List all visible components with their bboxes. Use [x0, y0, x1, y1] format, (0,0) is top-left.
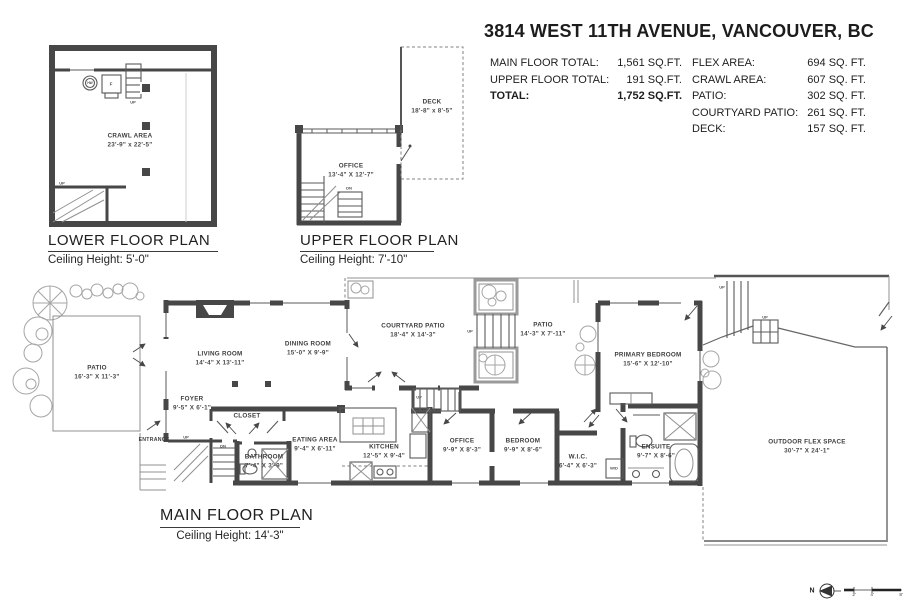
stat-row: COURTYARD PATIO: 261 SQ. FT. — [692, 105, 866, 122]
stat-label: PATIO: — [692, 88, 726, 105]
stat-label: DECK: — [692, 121, 726, 138]
room-label-office: OFFICE 9'-9" X 8'-3" — [443, 437, 481, 456]
upper-plan-caption: UPPER FLOOR PLAN Ceiling Height: 7'-10" — [300, 232, 434, 266]
caption-rule — [160, 527, 300, 528]
stairs-dn-label: DN — [220, 444, 226, 449]
lower-plan-ceiling: Ceiling Height: 5'-0" — [48, 254, 218, 266]
stat-row: PATIO: 302 SQ. FT. — [692, 88, 866, 105]
room-label-foyer: FOYER 9'-5" X 6'-1" — [173, 395, 211, 414]
stat-row: CRAWL AREA: 607 SQ. FT. — [692, 72, 866, 89]
stairs-up-label: UP — [416, 395, 422, 400]
room-label-upper-office: OFFICE 13'-4" X 12'-7" — [328, 162, 374, 181]
stat-row: MAIN FLOOR TOTAL: 1,561 SQ.FT. — [490, 55, 682, 72]
main-plan-graphics — [13, 276, 892, 545]
room-label-outdoor-flex-space: OUTDOOR FLEX SPACE 30'-7" X 24'-1" — [768, 438, 846, 457]
compass-and-scale — [819, 584, 902, 598]
stat-row: FLEX AREA: 694 SQ. FT. — [692, 55, 866, 72]
stat-row: UPPER FLOOR TOTAL: 191 SQ.FT. — [490, 72, 682, 89]
main-plan-title: MAIN FLOOR PLAN — [160, 507, 300, 525]
stat-value: 261 SQ. FT. — [807, 105, 866, 122]
room-label-eating-area: EATING AREA 9'-4" X 6'-11" — [292, 436, 337, 455]
stairs-up-label: UP — [59, 181, 65, 186]
room-label-courtyard-patio: COURTYARD PATIO 18'-4" X 14'-3" — [381, 322, 444, 341]
stat-row-total: TOTAL: 1,752 SQ.FT. — [490, 88, 682, 105]
room-label-crawl-area: CRAWL AREA 23'-9" x 22'-5" — [108, 132, 153, 151]
stairs-up-label: UP — [719, 285, 725, 290]
stairs-up-label: UP — [762, 315, 768, 320]
furnace-label: F — [110, 82, 113, 87]
stairs-up-label: UP — [130, 100, 136, 105]
stat-value: 157 SQ. FT. — [807, 121, 866, 138]
stat-label: TOTAL: — [490, 88, 529, 105]
scale-tick: 4' — [870, 592, 873, 597]
upper-plan-ceiling: Ceiling Height: 7'-10" — [300, 254, 434, 266]
room-label-closet: CLOSET — [233, 411, 260, 420]
room-label-kitchen: KITCHEN 12'-5" X 9'-4" — [363, 443, 405, 462]
stat-label: MAIN FLOOR TOTAL: — [490, 55, 599, 72]
washer-dryer-label: W/D — [610, 466, 618, 471]
outdoor-flex-space-outline — [701, 281, 887, 545]
stat-value: 694 SQ. FT. — [807, 55, 866, 72]
room-label-bathroom: BATHROOM 7'-4" X 3'-9" — [245, 453, 284, 472]
room-label-ensuite: ENSUITE 9'-7" X 8'-6" — [637, 443, 675, 462]
scale-tick: 8' — [899, 592, 902, 597]
stat-value: 1,561 SQ.FT. — [617, 55, 682, 72]
stat-label: FLEX AREA: — [692, 55, 755, 72]
room-label-deck: DECK 18'-8" x 8'-5" — [411, 98, 452, 117]
upper-plan-title: UPPER FLOOR PLAN — [300, 232, 434, 249]
stat-label: CRAWL AREA: — [692, 72, 766, 89]
caption-rule — [300, 251, 434, 252]
main-plan-caption: MAIN FLOOR PLAN Ceiling Height: 14'-3" — [160, 507, 300, 542]
stat-label: COURTYARD PATIO: — [692, 105, 798, 122]
room-label-wic: W.I.C. 6'-4" X 6'-3" — [559, 453, 597, 472]
lower-plan-title: LOWER FLOOR PLAN — [48, 232, 218, 249]
page-title: 3814 WEST 11TH AVENUE, VANCOUVER, BC — [479, 21, 879, 42]
room-label-dining-room: DINING ROOM 15'-0" X 9'-9" — [285, 340, 331, 359]
stairs-up-label: UP — [183, 435, 189, 440]
scale-tick: 2' — [852, 592, 855, 597]
stat-value: 607 SQ. FT. — [807, 72, 866, 89]
floor-totals-table: MAIN FLOOR TOTAL: 1,561 SQ.FT. UPPER FLO… — [490, 55, 682, 105]
lower-plan-caption: LOWER FLOOR PLAN Ceiling Height: 5'-0" — [48, 232, 218, 266]
room-label-patio-mid: PATIO 14'-3" X 7'-11" — [520, 321, 565, 340]
main-plan-ceiling: Ceiling Height: 14'-3" — [160, 530, 300, 542]
room-label-living-room: LIVING ROOM 14'-4" X 13'-11" — [195, 350, 244, 369]
room-label-patio-west: PATIO 16'-3" X 11'-3" — [74, 364, 119, 383]
stat-value: 302 SQ. FT. — [807, 88, 866, 105]
upper-plan-graphics — [295, 47, 463, 225]
room-label-primary-bedroom: PRIMARY BEDROOM 15'-6" X 12'-10" — [614, 351, 681, 370]
stat-value: 1,752 SQ.FT. — [617, 88, 682, 105]
room-label-bedroom: BEDROOM 9'-9" X 8'-6" — [504, 437, 542, 456]
stat-row: DECK: 157 SQ. FT. — [692, 121, 866, 138]
stairs-dn-label: DN — [346, 186, 352, 191]
floorplan-sheet: 3814 WEST 11TH AVENUE, VANCOUVER, BC MAI… — [0, 0, 910, 606]
stat-value: 191 SQ.FT. — [626, 72, 682, 89]
caption-rule — [48, 251, 218, 252]
hot-water-tank-label: HW — [87, 81, 92, 85]
area-totals-table: FLEX AREA: 694 SQ. FT. CRAWL AREA: 607 S… — [692, 55, 866, 138]
stairs-up-label: UP — [467, 329, 473, 334]
stat-label: UPPER FLOOR TOTAL: — [490, 72, 609, 89]
landscaping — [13, 283, 144, 417]
room-label-entrance: ENTRANCE — [139, 437, 170, 445]
north-indicator: N — [809, 588, 814, 595]
